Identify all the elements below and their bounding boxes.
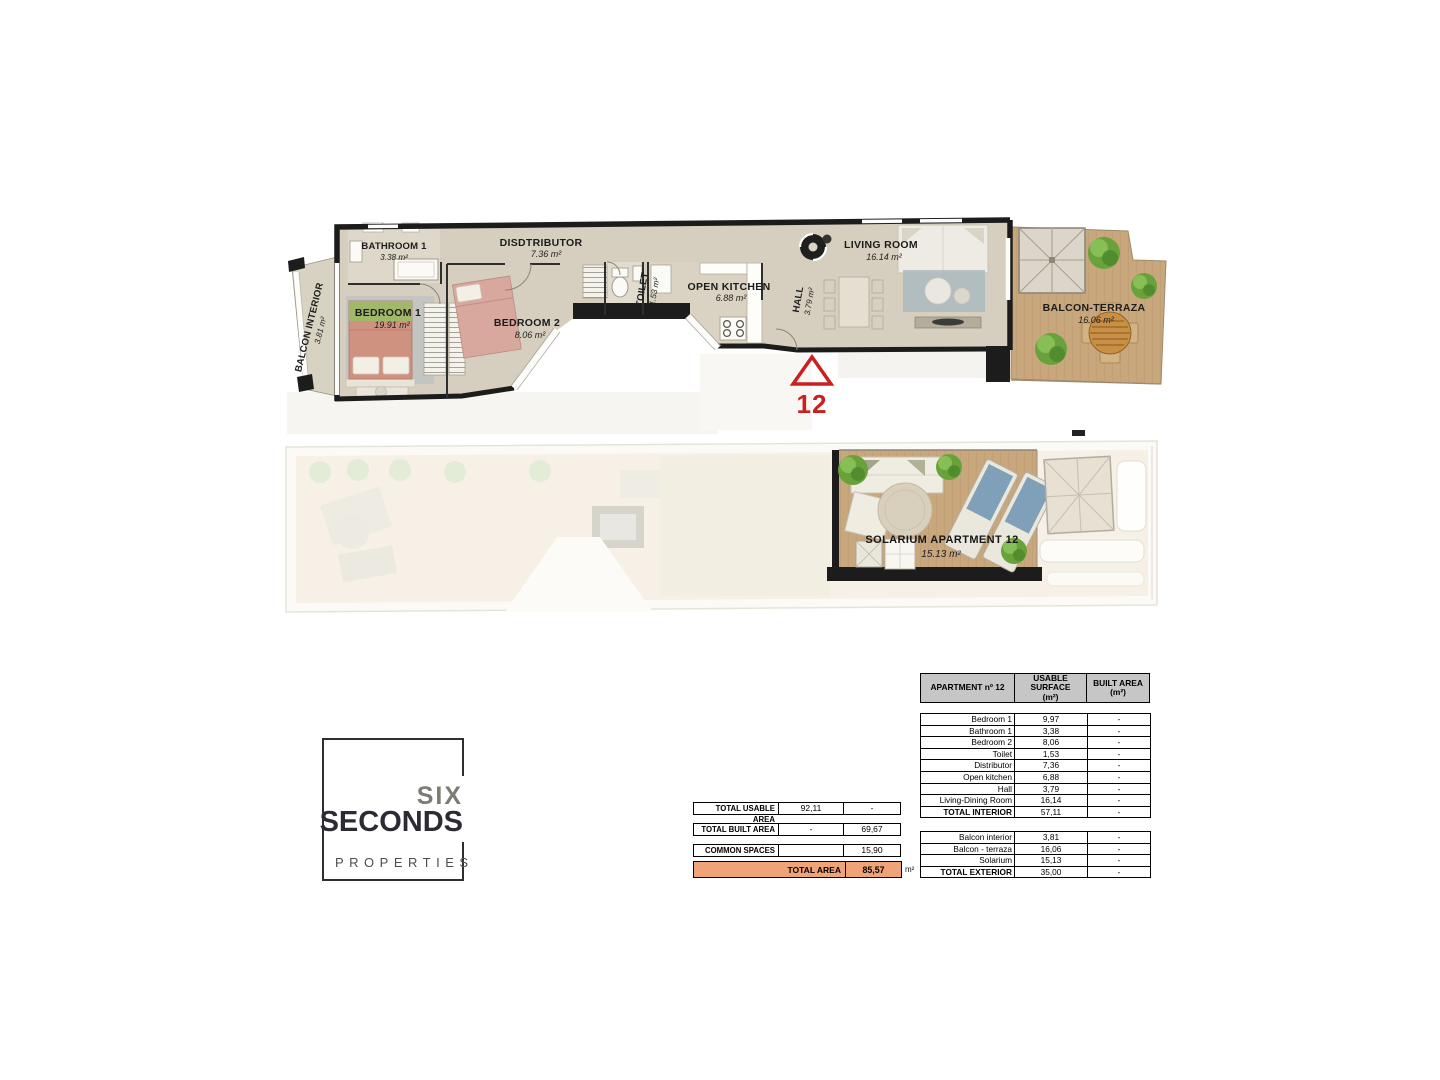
logo-word-properties: PROPERTIES [335, 855, 474, 870]
company-logo: SIX SECONDS PROPERTIES [322, 738, 464, 881]
summary-total-row: TOTAL AREA 85,57 m² [693, 861, 914, 878]
table-row-total-interior: TOTAL INTERIOR 57,11 - [920, 806, 1151, 819]
living-area: 16.14 m² [866, 252, 903, 262]
wall-step [986, 346, 1010, 382]
solarium-label: SOLARIUM APARTMENT 12 [865, 534, 1018, 546]
header-apartment: APARTMENT nº 12 [920, 673, 1015, 703]
summary-usable-value: - [778, 823, 844, 836]
bedroom2-area: 8.06 m² [515, 330, 547, 340]
header-built-line2: (m²) [1087, 688, 1149, 698]
header-usable-surface: USABLE SURFACE (m²) [1014, 673, 1088, 703]
detail-table-header: APARTMENT nº 12 USABLE SURFACE (m²) BUIL… [920, 673, 1150, 703]
solarium-area: 15.13 m² [921, 549, 961, 560]
header-usable-line2: (m²) [1015, 693, 1087, 703]
summary-label: COMMON SPACES [693, 844, 779, 857]
kitchen-label: OPEN KITCHEN [688, 281, 771, 293]
summary-label: TOTAL USABLE AREA [693, 802, 779, 815]
summary-built-value: 69,67 [843, 823, 901, 836]
kitchen-area: 6.88 m² [716, 293, 748, 303]
distributor-label: DISDTRIBUTOR [500, 237, 583, 249]
distributor-area: 7.36 m² [531, 249, 563, 259]
terraza-plant-2 [1131, 273, 1157, 299]
row-built: - [1087, 866, 1151, 879]
marker-number: 12 [797, 389, 828, 419]
summary-built-value: 15,90 [843, 844, 901, 857]
solarium: SOLARIUM APARTMENT 12 15.13 m² [827, 450, 1057, 581]
dining-set [824, 277, 883, 329]
terraza-plant-3 [1035, 333, 1067, 365]
wall-notch [573, 303, 690, 319]
header-usable-line1: USABLE SURFACE [1015, 674, 1087, 693]
summary-row-common: COMMON SPACES 15,90 [693, 844, 901, 857]
row-label: TOTAL INTERIOR [920, 806, 1015, 819]
parasol [1019, 228, 1085, 293]
bathroom1-label: BATHROOM 1 [361, 241, 427, 252]
row-label: TOTAL EXTERIOR [920, 866, 1015, 879]
summary-usable-value [778, 844, 844, 857]
terraza-label: BALCON-TERRAZA [1043, 302, 1146, 314]
summary-usable-value: 92,11 [778, 802, 844, 815]
header-built-area: BUILT AREA (m²) [1086, 673, 1150, 703]
summary-label: TOTAL BUILT AREA [693, 823, 779, 836]
row-built: - [1087, 806, 1151, 819]
floor-plans: BATHROOM 1 3.38 m² BEDROOM 1 19.91 m² DI… [0, 0, 1440, 1080]
summary-built-value: - [843, 802, 901, 815]
summary-row-built: TOTAL BUILT AREA - 69,67 [693, 823, 901, 836]
logo-word-seconds: SECONDS [320, 806, 463, 839]
living-label: LIVING ROOM [844, 239, 918, 251]
bedroom1-area: 19.91 m² [374, 320, 411, 330]
bedroom2-label: BEDROOM 2 [494, 317, 560, 329]
total-area-value: 85,57 [845, 861, 902, 878]
total-area-unit: m² [905, 861, 914, 878]
total-area-label: TOTAL AREA [693, 861, 846, 878]
terraza-area: 16.06 m² [1078, 315, 1115, 325]
bedroom1-label: BEDROOM 1 [355, 307, 421, 319]
bathroom1-area: 3.38 m² [380, 253, 408, 262]
row-usable: 35,00 [1014, 866, 1088, 879]
row-usable: 57,11 [1014, 806, 1088, 819]
detail-table-interior: Bedroom 1 9,97 - Bathroom 1 3,38 - Bedro… [920, 714, 1151, 818]
summary-row-usable: TOTAL USABLE AREA 92,11 - [693, 802, 901, 815]
detail-table-exterior: Balcon interior 3,81 - Balcon - terraza … [920, 832, 1151, 878]
terraza-plant-1 [1088, 237, 1120, 269]
page: BATHROOM 1 3.38 m² BEDROOM 1 19.91 m² DI… [0, 0, 1440, 1080]
table-row-total-exterior: TOTAL EXTERIOR 35,00 - [920, 866, 1151, 879]
